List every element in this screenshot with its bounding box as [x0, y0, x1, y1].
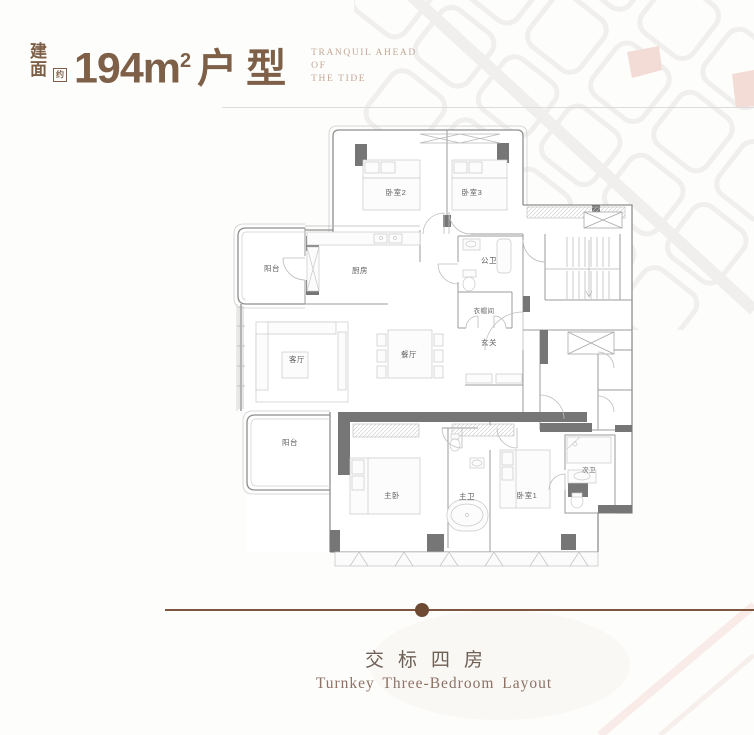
faint-top-rule	[222, 107, 754, 108]
tagline-line: OF	[311, 60, 417, 73]
room-label-cloakroom: 衣帽间	[474, 306, 495, 315]
page: { "header": { "area_label_char1": "建", "…	[0, 0, 754, 735]
room-label-master-bedroom: 主卧	[384, 490, 400, 500]
footer-title-en: Turnkey Three-Bedroom Layout	[104, 675, 754, 693]
room-label-living: 客厅	[289, 354, 305, 364]
room-label-kitchen: 厨房	[352, 265, 368, 275]
room-label-bedroom3: 卧室3	[462, 187, 483, 197]
area-label-block: 建 面 约	[30, 43, 68, 79]
header: 建 面 约 194m2户型 TRANQUIL AHEAD OF THE TIDE	[30, 36, 417, 94]
tagline-line: THE TIDE	[311, 73, 417, 86]
area-type-label: 户型	[197, 47, 295, 91]
room-label-public-bath: 公卫	[481, 256, 497, 265]
area-label-char: 建	[30, 43, 68, 61]
room-label-bedroom2: 卧室2	[386, 187, 407, 197]
room-label-foyer: 玄关	[481, 337, 497, 347]
room-label-second-bath: 次卫	[582, 465, 596, 474]
approx-badge: 约	[53, 68, 67, 82]
floor-plan: 卧室2 卧室3 阳台 厨房 公卫 衣帽间 玄关 客厅 餐厅 阳台 主卧 主卫 卧…	[225, 115, 645, 585]
room-label-balcony-top: 阳台	[264, 263, 280, 273]
area-number: 194m	[74, 44, 180, 92]
footer-title-cn: 交标四房	[94, 645, 754, 672]
room-label-bedroom1: 卧室1	[517, 490, 538, 500]
footer-divider-line	[165, 609, 754, 611]
room-label-balcony-bottom: 阳台	[282, 437, 298, 447]
area-superscript: 2	[180, 50, 191, 72]
tagline-line: TRANQUIL AHEAD	[311, 47, 417, 60]
tagline: TRANQUIL AHEAD OF THE TIDE	[311, 47, 417, 86]
footer-divider-dot	[415, 603, 429, 617]
room-label-dining: 餐厅	[401, 350, 417, 359]
area-title: 194m2户型	[74, 36, 295, 94]
room-label-master-bath: 主卫	[459, 491, 475, 501]
map-highlight-parcel	[627, 46, 662, 78]
map-highlight-parcel	[732, 70, 754, 108]
